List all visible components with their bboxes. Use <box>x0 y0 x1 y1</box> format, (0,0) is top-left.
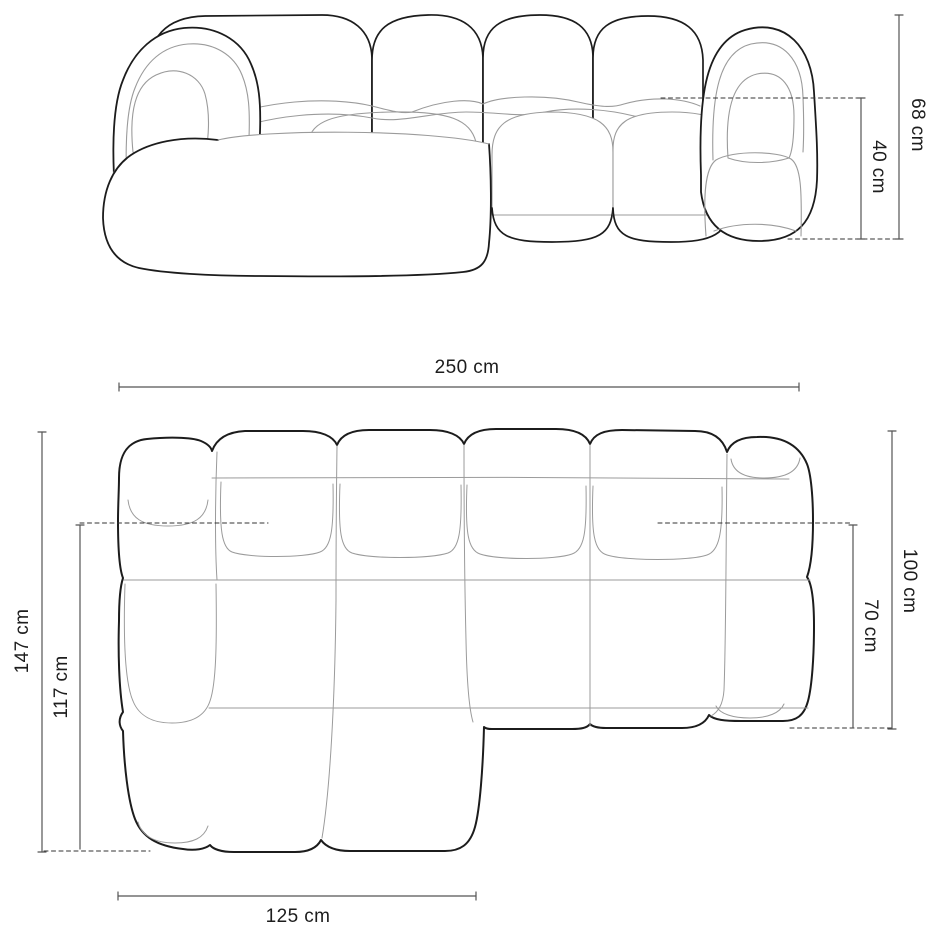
sofa-line-drawing <box>0 0 940 940</box>
front-right-armrest <box>700 27 817 241</box>
front-chaise-cushion <box>103 132 491 277</box>
sofa-dimension-diagram: 68 cm 40 cm 250 cm 147 cm 117 cm 100 cm … <box>0 0 940 940</box>
plan-view <box>118 429 814 852</box>
front-elevation-view <box>103 15 817 276</box>
dimension-label-chaise-depth: 117 cm <box>51 655 73 718</box>
dimension-label-total-depth: 147 cm <box>12 609 34 674</box>
total-depth-dimension-line <box>38 432 46 852</box>
dimension-label-chaise-width: 125 cm <box>266 906 331 928</box>
seat-height-dimension-line <box>857 98 865 239</box>
chaise-width-dimension-line <box>118 892 476 900</box>
chaise-depth-dimension-line <box>76 525 84 849</box>
seat-depth-dimension-line <box>849 525 857 728</box>
body-depth-dimension-line <box>888 431 896 729</box>
dimension-label-total-width: 250 cm <box>435 357 500 379</box>
total-height-dimension-line <box>895 15 903 239</box>
dimension-label-body-depth: 100 cm <box>898 549 920 614</box>
dimension-label-seat-depth: 70 cm <box>859 599 881 653</box>
total-width-dimension-line <box>119 383 799 391</box>
dimension-label-seat-height: 40 cm <box>867 140 889 194</box>
dimension-label-total-height: 68 cm <box>906 98 928 152</box>
